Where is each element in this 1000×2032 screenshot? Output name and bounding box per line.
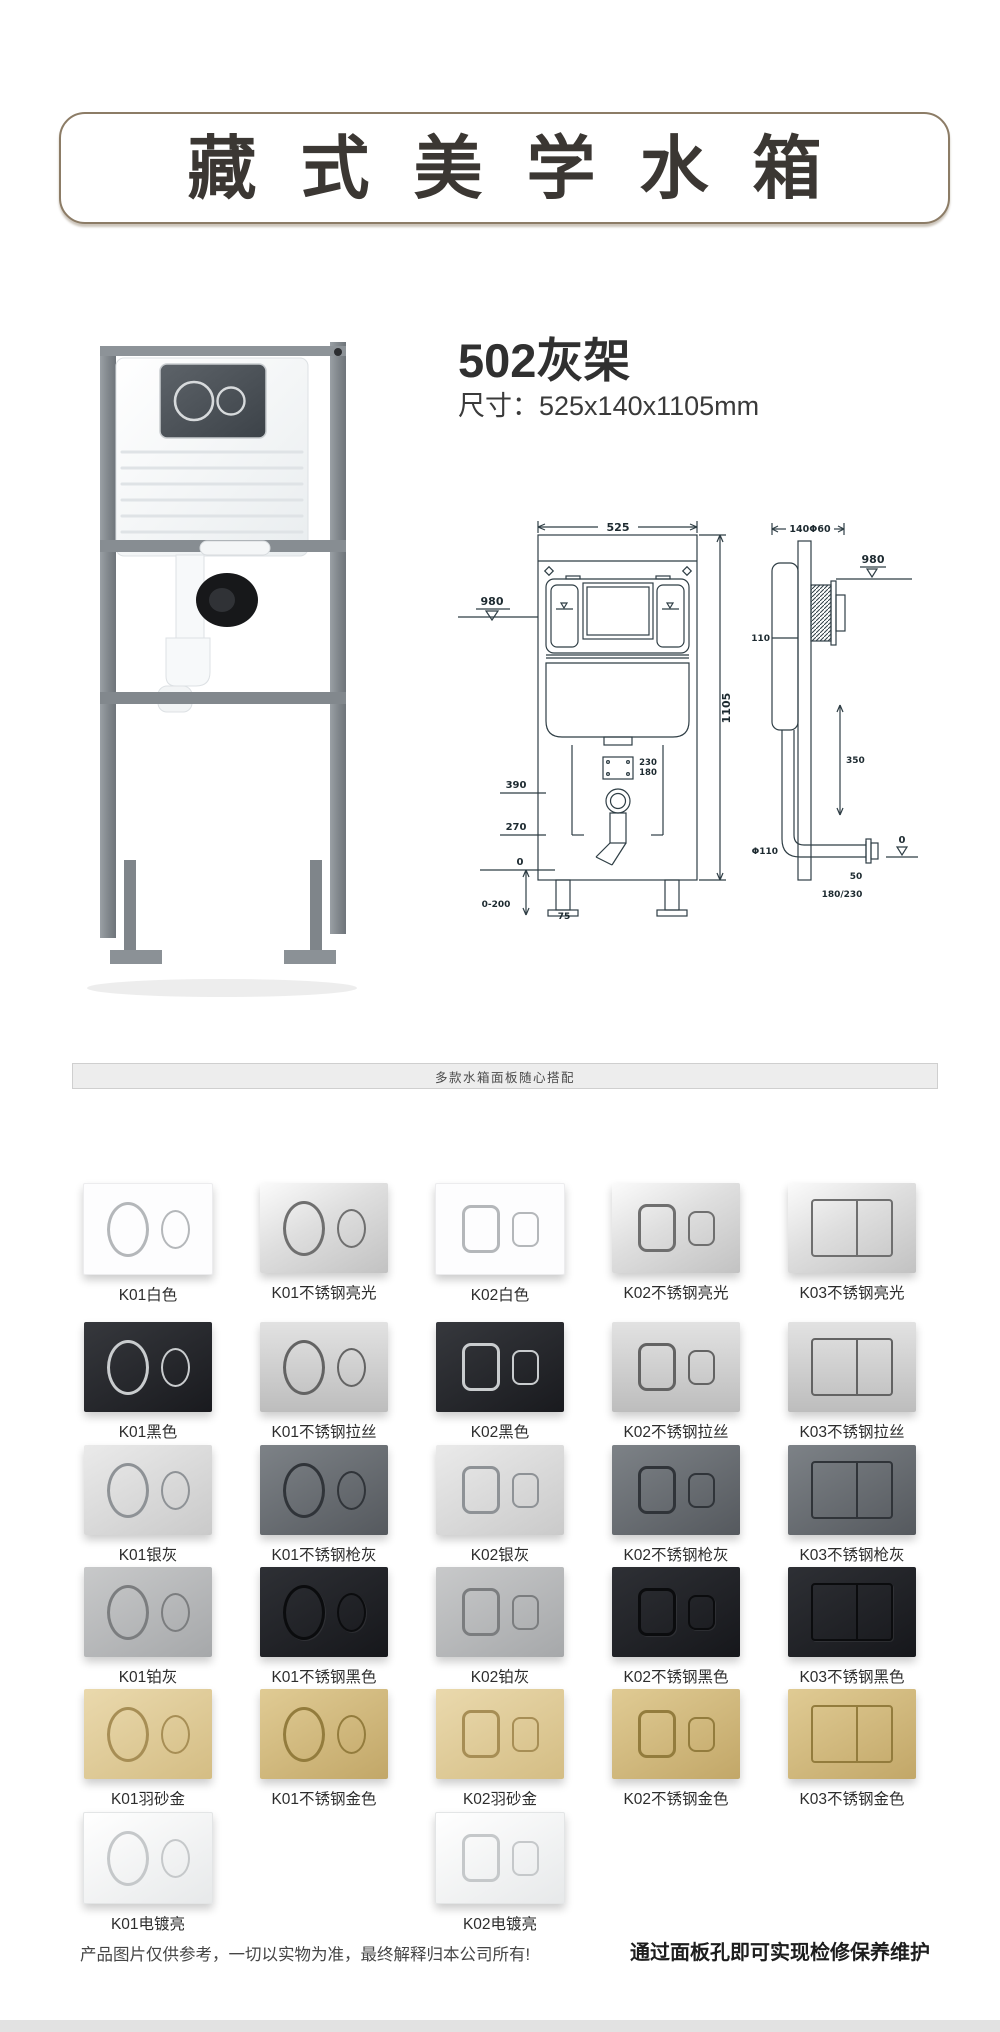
panel-option-label: K03不锈钢亮光 [799, 1281, 904, 1303]
panel-option-label: K02不锈钢金色 [623, 1787, 728, 1809]
panel-option: K01不锈钢亮光 [260, 1183, 388, 1308]
panel-slot: K03不锈钢拉丝 [764, 1322, 940, 1447]
flush-panel-swatch [436, 1689, 564, 1779]
square-button-small [512, 1473, 539, 1508]
dim-side-level: 980 [862, 553, 885, 566]
square-button-small [512, 1212, 539, 1247]
panel-option: K03不锈钢亮光 [788, 1183, 916, 1308]
panel-option: K02不锈钢亮光 [612, 1183, 740, 1308]
left-leg [124, 860, 136, 952]
technical-drawing: 525 980 1105 230 180 390 270 0 0-200 75 … [420, 505, 980, 975]
panel-slot: K02不锈钢金色 [588, 1689, 764, 1814]
panel-option-label: K01不锈钢枪灰 [271, 1543, 376, 1565]
square-button-small [688, 1211, 715, 1246]
split-button [811, 1338, 893, 1396]
panel-option: K02不锈钢拉丝 [612, 1322, 740, 1447]
panel-option-label: K02银灰 [471, 1543, 530, 1565]
side-view [772, 523, 918, 880]
round-button-large [107, 1585, 149, 1640]
panel-row: K01羽砂金K01不锈钢金色K02羽砂金K02不锈钢金色K03不锈钢金色 [60, 1689, 940, 1814]
round-button-large [283, 1463, 325, 1518]
square-button-large [638, 1710, 676, 1758]
flush-panel-swatch [612, 1689, 740, 1779]
panel-option: K01电镀亮 [83, 1812, 213, 1937]
panel-option-label: K01羽砂金 [111, 1787, 185, 1809]
frame-left-rail [100, 346, 116, 938]
panel-option: K02银灰 [436, 1445, 564, 1570]
panel-option: K02黑色 [436, 1322, 564, 1447]
inlet-pipe [200, 541, 270, 555]
panel-option-label: K03不锈钢枪灰 [799, 1543, 904, 1565]
round-button-large [283, 1340, 325, 1395]
flush-panel-swatch [83, 1812, 213, 1904]
round-button-small [337, 1593, 366, 1632]
panel-option: K02电镀亮 [435, 1812, 565, 1937]
panel-slot: K02铂灰 [412, 1567, 588, 1692]
dim-side-offset: 110 [751, 634, 770, 644]
flush-panel-swatch [612, 1322, 740, 1412]
panel-slot: K02不锈钢枪灰 [588, 1445, 764, 1570]
round-button-small [161, 1348, 190, 1387]
product-dimensions: 尺寸：525x140x1105mm [458, 384, 759, 423]
panel-option-label: K01铂灰 [119, 1665, 178, 1687]
round-button-small [337, 1348, 366, 1387]
round-button-small [161, 1715, 190, 1754]
frame-right-rail [330, 342, 346, 934]
square-button-large [638, 1204, 676, 1252]
panel-row: K01白色K01不锈钢亮光K02白色K02不锈钢亮光K03不锈钢亮光 [60, 1183, 940, 1308]
flush-panel-swatch [788, 1567, 916, 1657]
panel-slot: K01不锈钢亮光 [236, 1183, 412, 1308]
flush-panel-swatch [436, 1567, 564, 1657]
square-button-small [512, 1350, 539, 1385]
panel-option-label: K02不锈钢黑色 [623, 1665, 728, 1687]
panel-slot: K02黑色 [412, 1322, 588, 1447]
panel-slot: K03不锈钢金色 [764, 1689, 940, 1814]
footer-disclaimer: 产品图片仅供参考，一切以实物为准，最终解释归本公司所有! [80, 1941, 530, 1965]
bottom-divider [0, 2020, 1000, 2032]
panel-option-label: K01银灰 [119, 1543, 178, 1565]
round-button-small [161, 1839, 190, 1878]
panel-option-label: K01不锈钢金色 [271, 1787, 376, 1809]
flush-panel-swatch [84, 1322, 212, 1412]
square-button-large [462, 1588, 500, 1636]
panel-slot: K01不锈钢枪灰 [236, 1445, 412, 1570]
panel-slot: K02不锈钢拉丝 [588, 1322, 764, 1447]
dim-side-depth: 140Φ60 [789, 524, 831, 535]
flush-panel-swatch [84, 1689, 212, 1779]
panel-slot: K01白色 [60, 1183, 236, 1308]
flush-panel-swatch [612, 1567, 740, 1657]
dim-front-level: 980 [481, 595, 504, 608]
panel-option: K02不锈钢金色 [612, 1689, 740, 1814]
round-button-small [337, 1209, 366, 1248]
panel-slot: K01羽砂金 [60, 1689, 236, 1814]
panel-option: K02不锈钢黑色 [612, 1567, 740, 1692]
panel-slot: K01不锈钢黑色 [236, 1567, 412, 1692]
square-button-small [512, 1717, 539, 1752]
square-button-large [638, 1588, 676, 1636]
panel-option: K01不锈钢金色 [260, 1689, 388, 1814]
round-button-large [107, 1831, 149, 1886]
round-button-large [283, 1707, 325, 1762]
round-button-large [107, 1340, 149, 1395]
panel-options-grid: K01白色K01不锈钢亮光K02白色K02不锈钢亮光K03不锈钢亮光K01黑色K… [60, 1183, 940, 1943]
panel-option-label: K02不锈钢亮光 [623, 1281, 728, 1303]
flush-panel-swatch [435, 1183, 565, 1275]
panel-option-label: K01白色 [119, 1283, 178, 1305]
flush-panel-swatch [84, 1567, 212, 1657]
flush-panel-swatch [612, 1183, 740, 1273]
panel-option-label: K02羽砂金 [463, 1787, 537, 1809]
right-foot [284, 950, 336, 964]
square-button-small [512, 1595, 539, 1630]
panel-option-label: K02白色 [471, 1283, 530, 1305]
panel-option: K03不锈钢金色 [788, 1689, 916, 1814]
square-button-small [688, 1350, 715, 1385]
split-button [811, 1583, 893, 1641]
dimension-labels: 525 980 1105 230 180 390 270 0 0-200 75 … [481, 521, 906, 922]
panel-option-label: K02不锈钢枪灰 [623, 1543, 728, 1565]
square-button-large [462, 1710, 500, 1758]
panel-slot: K03不锈钢枪灰 [764, 1445, 940, 1570]
panel-row: K01银灰K01不锈钢枪灰K02银灰K02不锈钢枪灰K03不锈钢枪灰 [60, 1445, 940, 1570]
panel-option-label: K01不锈钢亮光 [271, 1281, 376, 1303]
panel-slot [236, 1812, 412, 1937]
panel-option-label: K02不锈钢拉丝 [623, 1420, 728, 1442]
panel-option: K01银灰 [84, 1445, 212, 1570]
product-title: 502灰架 [458, 322, 630, 391]
panel-option-label: K03不锈钢金色 [799, 1787, 904, 1809]
panels-banner-text: 多款水箱面板随心搭配 [435, 1067, 575, 1086]
frame-top-bar [100, 346, 346, 356]
panel-option: K02白色 [435, 1183, 565, 1308]
round-button-large [107, 1463, 149, 1518]
panels-banner: 多款水箱面板随心搭配 [72, 1063, 938, 1089]
dim-front-height: 1105 [720, 693, 733, 724]
split-button [811, 1705, 893, 1763]
panel-slot: K02不锈钢黑色 [588, 1567, 764, 1692]
panel-option: K01羽砂金 [84, 1689, 212, 1814]
split-button [811, 1461, 893, 1519]
panel-slot: K01银灰 [60, 1445, 236, 1570]
round-button-small [337, 1471, 366, 1510]
panel-option: K01不锈钢黑色 [260, 1567, 388, 1692]
split-button [811, 1199, 893, 1257]
square-button-small [688, 1595, 715, 1630]
panel-slot: K01不锈钢拉丝 [236, 1322, 412, 1447]
panel-option-label: K02电镀亮 [463, 1912, 537, 1934]
front-view [458, 521, 726, 916]
flush-panel-swatch [788, 1183, 916, 1273]
panel-option: K01不锈钢拉丝 [260, 1322, 388, 1447]
square-button-large [462, 1466, 500, 1514]
panel-option: K03不锈钢枪灰 [788, 1445, 916, 1570]
panel-option: K01黑色 [84, 1322, 212, 1447]
panel-slot [764, 1812, 940, 1937]
round-button-large [283, 1201, 325, 1256]
panel-slot: K01铂灰 [60, 1567, 236, 1692]
dim-side-dia: Φ110 [752, 847, 778, 857]
panel-option: K03不锈钢黑色 [788, 1567, 916, 1692]
round-button-large [283, 1585, 325, 1640]
square-button-large [638, 1343, 676, 1391]
panel-slot: K01电镀亮 [60, 1812, 236, 1937]
square-button-large [462, 1205, 500, 1253]
dim-75: 75 [558, 912, 571, 922]
dim-side-zero: 0 [899, 835, 906, 846]
dim-zero: 0 [517, 857, 524, 868]
floor-shadow [87, 979, 357, 997]
panel-slot: K03不锈钢黑色 [764, 1567, 940, 1692]
footer-maintenance-note: 通过面板孔即可实现检修保养维护 [630, 1936, 930, 1965]
product-detail-page: 藏式美学水箱 [0, 0, 1000, 2032]
square-button-large [638, 1466, 676, 1514]
round-button-small [337, 1715, 366, 1754]
flush-panel-swatch [436, 1322, 564, 1412]
panel-option: K02铂灰 [436, 1567, 564, 1692]
dim-side-50: 50 [850, 872, 863, 882]
flush-panel-swatch [260, 1567, 388, 1657]
panel-slot [588, 1812, 764, 1937]
panel-option-label: K02黑色 [471, 1420, 530, 1442]
panel-option-label: K01黑色 [119, 1420, 178, 1442]
header-banner: 藏式美学水箱 [59, 112, 950, 224]
dim-390: 390 [506, 780, 527, 791]
dim-side-180-230: 180/230 [822, 890, 863, 900]
round-button-small [161, 1593, 190, 1632]
drain-gasket-hole [209, 588, 235, 612]
round-button-large [107, 1202, 149, 1257]
panel-slot: K01不锈钢金色 [236, 1689, 412, 1814]
flush-panel-swatch [788, 1322, 916, 1412]
panel-slot: K02不锈钢亮光 [588, 1183, 764, 1308]
flush-panel-swatch [612, 1445, 740, 1535]
panel-option: K02不锈钢枪灰 [612, 1445, 740, 1570]
panel-option: K01铂灰 [84, 1567, 212, 1692]
square-button-small [688, 1473, 715, 1508]
panel-option: K02羽砂金 [436, 1689, 564, 1814]
round-button-small [161, 1210, 190, 1249]
round-button-large [107, 1707, 149, 1762]
product-photo [70, 300, 370, 1000]
flush-panel-swatch [435, 1812, 565, 1904]
flush-panel-swatch [788, 1689, 916, 1779]
square-button-large [462, 1343, 500, 1391]
square-button-small [688, 1717, 715, 1752]
lower-bracket [100, 692, 346, 704]
flush-panel-swatch [436, 1445, 564, 1535]
right-leg [310, 860, 322, 952]
panel-option-label: K01不锈钢黑色 [271, 1665, 376, 1687]
dim-hole-a: 230 [639, 758, 657, 768]
panel-slot: K02银灰 [412, 1445, 588, 1570]
flush-panel-swatch [788, 1445, 916, 1535]
panel-option: K01不锈钢枪灰 [260, 1445, 388, 1570]
panel-option-label: K01不锈钢拉丝 [271, 1420, 376, 1442]
panel-slot: K02电镀亮 [412, 1812, 588, 1937]
round-button-small [161, 1471, 190, 1510]
panel-option-label: K03不锈钢拉丝 [799, 1420, 904, 1442]
panel-option: K01白色 [83, 1183, 213, 1308]
dim-270: 270 [506, 822, 527, 833]
flush-panel-swatch [260, 1322, 388, 1412]
panel-option-label: K03不锈钢黑色 [799, 1665, 904, 1687]
flush-panel-swatch [84, 1445, 212, 1535]
dim-hole-b: 180 [639, 768, 657, 778]
dim-range: 0-200 [482, 900, 511, 910]
flush-panel-swatch [83, 1183, 213, 1275]
panel-row: K01电镀亮K02电镀亮 [60, 1812, 940, 1937]
flush-panel-swatch [260, 1183, 388, 1273]
panel-option-label: K02铂灰 [471, 1665, 530, 1687]
panel-option-label: K01电镀亮 [111, 1912, 185, 1934]
drain-elbow [166, 638, 210, 686]
left-foot [110, 950, 162, 964]
page-title: 藏式美学水箱 [144, 134, 866, 203]
dim-front-width: 525 [607, 521, 630, 534]
panel-slot: K03不锈钢亮光 [764, 1183, 940, 1308]
flush-panel-swatch [260, 1689, 388, 1779]
panel-slot: K01黑色 [60, 1322, 236, 1447]
square-button-large [462, 1834, 500, 1882]
panel-row: K01铂灰K01不锈钢黑色K02铂灰K02不锈钢黑色K03不锈钢黑色 [60, 1567, 940, 1692]
panel-slot: K02羽砂金 [412, 1689, 588, 1814]
square-button-small [512, 1841, 539, 1876]
dim-side-drop: 350 [846, 756, 865, 766]
bolt [334, 348, 342, 356]
panel-option: K03不锈钢拉丝 [788, 1322, 916, 1447]
panel-slot: K02白色 [412, 1183, 588, 1308]
flush-panel-swatch [260, 1445, 388, 1535]
panel-row: K01黑色K01不锈钢拉丝K02黑色K02不锈钢拉丝K03不锈钢拉丝 [60, 1322, 940, 1447]
